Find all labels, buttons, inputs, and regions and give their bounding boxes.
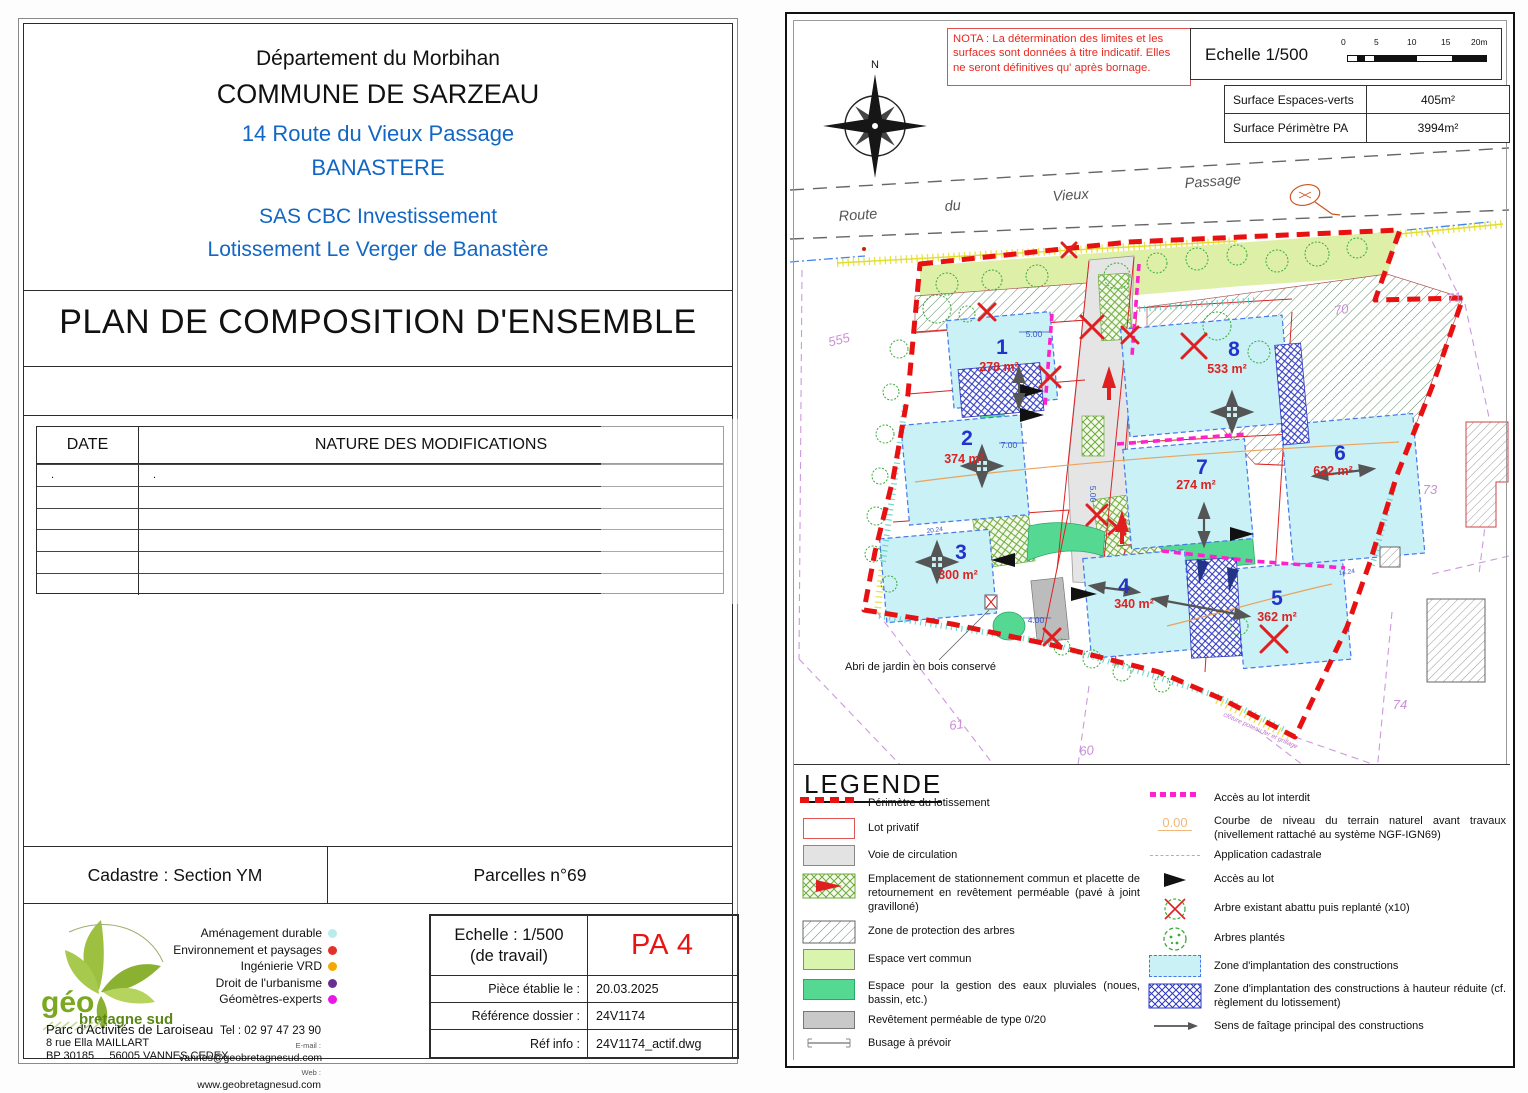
commune-line: COMMUNE DE SARZEAU — [19, 79, 737, 110]
svg-text:73: 73 — [1423, 482, 1438, 497]
website: Web : www.geobretagnesud.com — [179, 1066, 321, 1093]
doc-code: PA 4 — [588, 916, 737, 975]
scale-label: Echelle 1/500 — [1205, 45, 1308, 65]
surface-value: 3994m² — [1367, 114, 1509, 142]
tree-protection-swatch-icon — [802, 920, 856, 944]
svg-text:7.00: 7.00 — [1001, 440, 1018, 450]
email: E-mail : vannes@geobretagnesud.com — [179, 1039, 321, 1066]
legend-item: Revêtement perméable de type 0/20 — [800, 1011, 1140, 1029]
svg-text:374 m²: 374 m² — [944, 452, 984, 466]
service-dot-icon — [328, 962, 337, 971]
divider — [23, 366, 733, 367]
info-row: Pièce établie le : 20.03.2025 — [431, 976, 737, 1003]
legend-item: Espace pour la gestion des eaux pluviale… — [800, 979, 1140, 1008]
svg-text:4: 4 — [1118, 575, 1130, 598]
construction-zone-swatch-icon — [1149, 955, 1201, 977]
legend-item: Lot privatif — [800, 818, 1140, 839]
svg-text:278 m²: 278 m² — [979, 360, 1019, 374]
svg-text:274 m²: 274 m² — [1176, 478, 1216, 492]
service-item: Droit de l'urbanisme — [159, 975, 337, 992]
svg-text:Route: Route — [838, 206, 878, 225]
lot-access-swatch-icon — [1164, 873, 1186, 887]
svg-text:555: 555 — [827, 330, 852, 350]
svg-text:8: 8 — [1228, 338, 1240, 361]
legend-item: Arbres plantés — [1146, 925, 1506, 953]
scale-box: Echelle 1/500 0 5 10 15 20m — [1190, 28, 1502, 80]
public-road: Route du Vieux Passage — [790, 148, 1509, 239]
legend-item: Busage à prévoir — [800, 1037, 1140, 1051]
legend-item: Emplacement de stationnement commun et p… — [800, 873, 1140, 914]
parcelles-number: Parcelles n°69 — [327, 847, 733, 903]
svg-text:362 m²: 362 m² — [1257, 610, 1297, 624]
svg-text:622 m²: 622 m² — [1313, 464, 1353, 478]
legend-item: Application cadastrale — [1146, 849, 1506, 863]
service-dot-icon — [328, 929, 337, 938]
phone: Tel : 02 97 47 23 90 — [179, 1025, 321, 1039]
culvert-swatch-icon — [802, 1037, 856, 1049]
owner-line: SAS CBC Investissement — [19, 205, 737, 229]
cell-date: . — [37, 465, 139, 486]
svg-text:6: 6 — [1334, 442, 1346, 465]
locality-line: BANASTERE — [19, 155, 737, 181]
address-line: 14 Route du Vieux Passage — [19, 121, 737, 147]
col-header-date: DATE — [37, 427, 139, 463]
drawing-info-table: Echelle : 1/500 (de travail) PA 4 Pièce … — [429, 914, 739, 1059]
legend-item: Arbre existant abattu puis replanté (x10… — [1146, 895, 1506, 923]
info-label: Référence dossier : — [431, 1003, 588, 1029]
legend-item: Accès au lot — [1146, 873, 1506, 887]
legend-item: Zone d'implantation des constructions — [1146, 955, 1506, 977]
site-plan-page: Route du Vieux Passage — [785, 12, 1515, 1068]
svg-text:Vieux: Vieux — [1052, 186, 1090, 205]
compass-icon: N — [823, 59, 927, 178]
svg-text:533 m²: 533 m² — [1207, 362, 1247, 376]
service-dot-icon — [328, 979, 337, 988]
private-lot-swatch-icon — [803, 818, 855, 839]
cadastral-swatch-icon — [1150, 855, 1200, 856]
cell-nature: . — [139, 465, 723, 486]
surface-label: Surface Espaces-verts — [1225, 86, 1367, 113]
info-value: 24V1174 — [588, 1003, 737, 1029]
service-item: Géomètres-experts — [159, 991, 337, 1008]
svg-text:N: N — [871, 59, 879, 71]
svg-text:Abri de jardin en bois conserv: Abri de jardin en bois conservé — [845, 661, 996, 673]
utility-pole-icon — [1288, 181, 1340, 215]
service-dot-icon — [328, 946, 337, 955]
contact-links: Tel : 02 97 47 23 90 E-mail : vannes@geo… — [179, 1025, 321, 1093]
scale-bar — [1347, 55, 1487, 62]
surface-row: Surface Périmètre PA 3994m² — [1225, 114, 1509, 142]
svg-text:5: 5 — [1271, 587, 1283, 610]
legend-item: Zone d'implantation des constructions à … — [1146, 983, 1506, 1011]
permeable-swatch-icon — [803, 1011, 855, 1029]
svg-text:340 m²: 340 m² — [1114, 597, 1154, 611]
info-row: Référence dossier : 24V1174 — [431, 1003, 737, 1030]
legend-item: Espace vert commun — [800, 949, 1140, 970]
permeable-surface-0-20 — [1031, 577, 1069, 642]
forbidden-access-swatch-icon — [1150, 792, 1200, 797]
service-item: Ingénierie VRD — [159, 958, 337, 975]
cadastre-section: Cadastre : Section YM — [23, 847, 327, 903]
legend-item: Sens de faîtage principal des constructi… — [1146, 1020, 1506, 1034]
cadastre-band: Cadastre : Section YM Parcelles n°69 — [23, 846, 733, 904]
modifications-table: DATE NATURE DES MODIFICATIONS . . — [36, 426, 724, 594]
scale-tick-labels: 0 5 10 15 20m — [1341, 37, 1491, 49]
surface-table: Surface Espaces-verts 405m² Surface Péri… — [1224, 85, 1510, 143]
svg-text:60: 60 — [1079, 742, 1096, 759]
surface-label: Surface Périmètre PA — [1225, 114, 1367, 142]
ridge-direction-swatch-icon — [1150, 1020, 1200, 1032]
info-value: 20.03.2025 — [588, 976, 737, 1002]
service-item: Environnement et paysages — [159, 942, 337, 959]
svg-text:4.00: 4.00 — [1028, 615, 1045, 625]
info-value: 24V1174_actif.dwg — [588, 1030, 737, 1057]
svg-text:1: 1 — [996, 336, 1008, 359]
scale-cell: Echelle : 1/500 (de travail) — [431, 916, 588, 975]
table-row — [37, 551, 723, 573]
svg-text:3: 3 — [955, 541, 967, 564]
surface-row: Surface Espaces-verts 405m² — [1225, 86, 1509, 114]
svg-text:300 m²: 300 m² — [938, 568, 978, 582]
info-label: Réf info : — [431, 1030, 588, 1057]
info-row: Réf info : 24V1174_actif.dwg — [431, 1030, 737, 1057]
table-row: . . — [37, 464, 723, 486]
legend-panel: LEGENDE Périmètre du lotissement Lot pri… — [794, 764, 1510, 1064]
divider — [23, 415, 733, 416]
svg-text:14.24: 14.24 — [1338, 568, 1355, 577]
legend-item: Accès au lot interdit — [1146, 792, 1506, 806]
parking-swatch-icon — [802, 873, 856, 899]
svg-text:7: 7 — [1196, 456, 1208, 479]
stormwater-swatch-icon — [803, 979, 855, 1000]
svg-text:61: 61 — [948, 716, 964, 733]
contour-swatch-icon: 0.00 — [1158, 815, 1191, 831]
table-row — [37, 486, 723, 508]
svg-text:71: 71 — [1446, 289, 1463, 306]
legend-item: Périmètre du lotissement — [800, 797, 1140, 811]
project-line: Lotissement Le Verger de Banastère — [19, 238, 737, 262]
info-label: Pièce établie le : — [431, 976, 588, 1002]
legend-item: Zone de protection des arbres — [800, 920, 1140, 944]
col-header-nature: NATURE DES MODIFICATIONS — [139, 427, 723, 463]
service-item: Aménagement durable — [159, 925, 337, 942]
services-list: Aménagement durable Environnement et pay… — [159, 925, 337, 1008]
svg-text:74: 74 — [1393, 697, 1407, 712]
road-swatch-icon — [803, 845, 855, 866]
service-dot-icon — [328, 995, 337, 1004]
table-row — [37, 508, 723, 530]
nota-notice: NOTA : La détermination des limites et l… — [947, 28, 1191, 86]
green-space-swatch-icon — [803, 949, 855, 970]
legend-item: 0.00 Courbe de niveau du terrain naturel… — [1146, 815, 1506, 843]
svg-text:Passage: Passage — [1184, 172, 1241, 192]
page-title: PLAN DE COMPOSITION D'ENSEMBLE — [19, 303, 737, 342]
planted-tree-swatch-icon — [1161, 925, 1189, 953]
table-row — [37, 529, 723, 551]
svg-text:5.00: 5.00 — [1088, 486, 1098, 503]
department-line: Département du Morbihan — [19, 47, 737, 71]
legend-item: Voie de circulation — [800, 845, 1140, 866]
surface-value: 405m² — [1367, 86, 1509, 113]
divider — [23, 290, 733, 291]
svg-text:du: du — [944, 198, 961, 215]
title-block-page: Département du Morbihan COMMUNE DE SARZE… — [18, 18, 738, 1064]
svg-text:2: 2 — [961, 427, 973, 450]
table-row — [37, 573, 723, 595]
svg-text:5.00: 5.00 — [1026, 329, 1043, 339]
felled-tree-swatch-icon — [1161, 895, 1189, 923]
perimeter-swatch-icon — [800, 797, 858, 803]
reduced-height-swatch-icon — [1148, 983, 1202, 1009]
